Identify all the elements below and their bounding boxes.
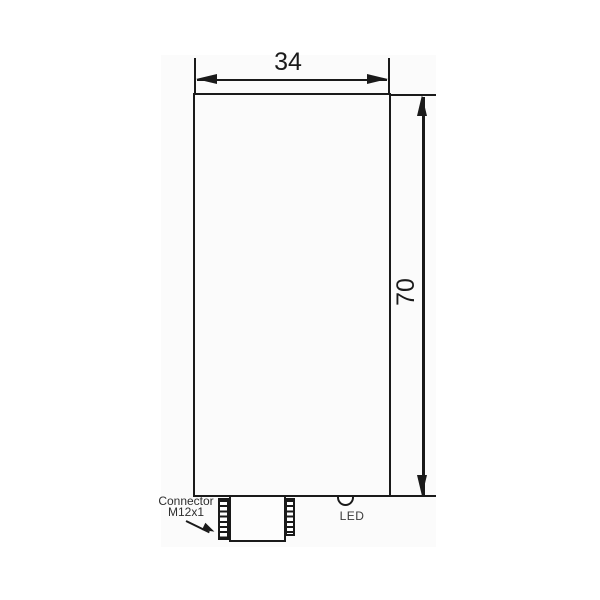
led-label: LED [337, 509, 367, 523]
connector-body [229, 497, 286, 542]
height-extension-line-bottom [391, 495, 436, 498]
height-dim-arrow-down-icon [417, 475, 427, 496]
connector-label: Connector M12x1 [154, 496, 218, 517]
width-dim-arrow-right-icon [367, 74, 388, 84]
connector-thread-left [218, 498, 229, 540]
connector-label-line2: M12x1 [154, 507, 218, 518]
width-dimension-label: 34 [257, 49, 319, 75]
height-dim-arrow-up-icon [417, 95, 427, 116]
technical-drawing-stage: 34 70 LED Connector M12x1 [0, 0, 600, 600]
width-dim-arrow-left-icon [196, 74, 217, 84]
width-dimension-line [197, 79, 387, 82]
height-dimension-label: 70 [382, 268, 430, 316]
height-extension-line-top [391, 94, 436, 97]
connector-thread-right [285, 498, 295, 536]
sensor-body-outline [193, 93, 391, 497]
